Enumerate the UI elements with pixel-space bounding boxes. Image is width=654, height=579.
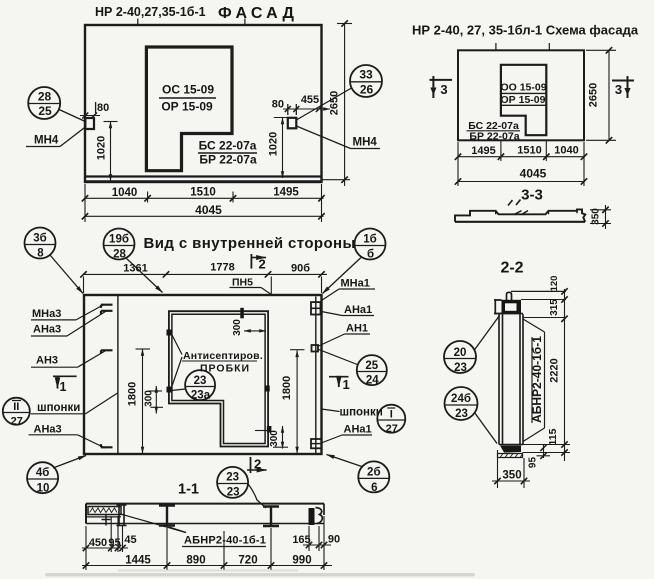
svg-text:23: 23 xyxy=(226,472,239,484)
svg-text:350: 350 xyxy=(591,208,602,225)
svg-text:3: 3 xyxy=(440,82,447,97)
svg-text:23: 23 xyxy=(454,362,467,374)
svg-text:25: 25 xyxy=(365,360,378,372)
svg-text:315: 315 xyxy=(549,299,560,316)
svg-text:Вид с внутренней стороны: Вид с внутренней стороны xyxy=(144,235,356,252)
svg-text:23: 23 xyxy=(227,487,240,499)
svg-text:АН1: АН1 xyxy=(346,323,368,335)
svg-text:НР 2-40, 27, 35-1бл-1 Схема фа: НР 2-40, 27, 35-1бл-1 Схема фасада xyxy=(412,23,639,38)
svg-text:455: 455 xyxy=(301,94,319,106)
svg-text:300: 300 xyxy=(232,319,243,336)
svg-text:23: 23 xyxy=(194,375,207,387)
svg-text:АНа3: АНа3 xyxy=(34,424,62,436)
svg-text:2-2: 2-2 xyxy=(500,260,523,277)
svg-text:19б: 19б xyxy=(109,234,129,246)
svg-text:НР 2-40,27,35-1б-1: НР 2-40,27,35-1б-1 xyxy=(95,5,206,19)
svg-text:2: 2 xyxy=(254,457,261,472)
svg-text:2650: 2650 xyxy=(329,91,341,115)
svg-text:1020: 1020 xyxy=(96,136,108,160)
svg-text:б: б xyxy=(367,249,374,261)
svg-text:АН3: АН3 xyxy=(36,355,58,367)
svg-text:80: 80 xyxy=(97,102,109,114)
svg-text:6: 6 xyxy=(371,482,377,494)
svg-text:3-3: 3-3 xyxy=(521,187,543,204)
svg-text:1б: 1б xyxy=(363,234,377,246)
svg-text:шпонки: шпонки xyxy=(37,402,80,414)
svg-text:1495: 1495 xyxy=(273,187,299,199)
svg-text:ОС 15-09: ОС 15-09 xyxy=(162,83,214,97)
svg-text:1800: 1800 xyxy=(127,382,139,406)
svg-text:3б: 3б xyxy=(33,233,47,245)
svg-text:1445: 1445 xyxy=(125,555,151,567)
svg-text:890: 890 xyxy=(186,555,205,567)
svg-text:3: 3 xyxy=(615,82,622,97)
svg-text:2650: 2650 xyxy=(588,83,600,107)
svg-text:4045: 4045 xyxy=(520,167,547,181)
svg-text:23а: 23а xyxy=(191,390,211,402)
svg-text:ОР 15-09: ОР 15-09 xyxy=(501,94,546,106)
svg-text:95: 95 xyxy=(108,537,120,549)
svg-text:АНа3: АНа3 xyxy=(33,324,61,336)
svg-text:1510: 1510 xyxy=(190,187,216,199)
svg-text:4045: 4045 xyxy=(195,203,222,217)
svg-text:1: 1 xyxy=(343,377,350,392)
svg-text:80: 80 xyxy=(272,99,284,111)
svg-text:1800: 1800 xyxy=(281,376,293,400)
svg-text:АНа1: АНа1 xyxy=(344,304,372,316)
svg-text:300: 300 xyxy=(144,390,155,407)
svg-text:1040: 1040 xyxy=(112,187,138,199)
svg-text:МН4: МН4 xyxy=(34,135,59,147)
svg-text:1361: 1361 xyxy=(123,263,147,275)
svg-text:33: 33 xyxy=(359,68,373,82)
svg-text:ФАСАД: ФАСАД xyxy=(218,5,298,22)
svg-text:МНа1: МНа1 xyxy=(341,278,370,290)
svg-text:шпонки: шпонки xyxy=(340,407,383,419)
svg-text:ОР 15-09: ОР 15-09 xyxy=(161,100,213,114)
svg-text:8: 8 xyxy=(37,248,44,260)
svg-text:БР 22-07а: БР 22-07а xyxy=(469,131,519,143)
svg-text:МНа3: МНа3 xyxy=(32,308,61,320)
svg-text:АНа1: АНа1 xyxy=(344,424,372,436)
svg-text:2220: 2220 xyxy=(549,358,561,382)
svg-text:1778: 1778 xyxy=(210,262,234,274)
svg-text:БР 22-07а: БР 22-07а xyxy=(199,153,257,167)
svg-text:БС 22-07а: БС 22-07а xyxy=(199,139,257,153)
svg-text:165: 165 xyxy=(292,534,310,546)
svg-text:300: 300 xyxy=(269,430,280,447)
svg-text:АБНР2-40-1б-1: АБНР2-40-1б-1 xyxy=(530,336,544,423)
svg-text:1510: 1510 xyxy=(517,145,541,157)
svg-text:45: 45 xyxy=(124,534,136,546)
svg-text:990: 990 xyxy=(292,555,311,567)
svg-text:115: 115 xyxy=(547,428,559,445)
svg-text:720: 720 xyxy=(238,555,257,567)
svg-text:2: 2 xyxy=(259,257,266,272)
svg-text:1040: 1040 xyxy=(554,145,578,157)
svg-text:27: 27 xyxy=(11,416,23,428)
svg-text:4б: 4б xyxy=(36,467,50,479)
svg-text:1020: 1020 xyxy=(268,132,280,156)
svg-text:90б: 90б xyxy=(291,263,310,275)
svg-text:24: 24 xyxy=(366,375,379,387)
svg-text:1-1: 1-1 xyxy=(178,482,199,498)
svg-text:28: 28 xyxy=(38,90,52,104)
svg-text:24б: 24б xyxy=(451,393,471,405)
svg-text:МН4: МН4 xyxy=(353,137,378,149)
svg-text:120: 120 xyxy=(549,276,560,292)
svg-text:90: 90 xyxy=(328,534,340,546)
svg-text:2б: 2б xyxy=(367,467,381,479)
svg-text:1495: 1495 xyxy=(471,145,495,157)
svg-text:1: 1 xyxy=(60,380,67,394)
svg-text:20: 20 xyxy=(454,347,467,359)
svg-text:23: 23 xyxy=(455,408,468,420)
svg-text:I: I xyxy=(390,409,393,421)
svg-text:II: II xyxy=(13,401,19,413)
svg-text:450: 450 xyxy=(89,537,107,549)
svg-text:26: 26 xyxy=(360,83,374,97)
svg-text:10: 10 xyxy=(37,483,50,495)
svg-text:350: 350 xyxy=(502,470,521,482)
svg-text:25: 25 xyxy=(38,104,52,118)
svg-text:Антисептиров.: Антисептиров. xyxy=(183,350,263,362)
svg-text:ОО 15-09: ОО 15-09 xyxy=(500,82,546,94)
svg-text:ПН5: ПН5 xyxy=(232,277,253,289)
svg-text:95: 95 xyxy=(528,457,539,469)
svg-text:АБНР2-40-1б-1: АБНР2-40-1б-1 xyxy=(184,535,266,547)
svg-text:28: 28 xyxy=(113,249,126,261)
svg-text:27: 27 xyxy=(386,423,398,435)
